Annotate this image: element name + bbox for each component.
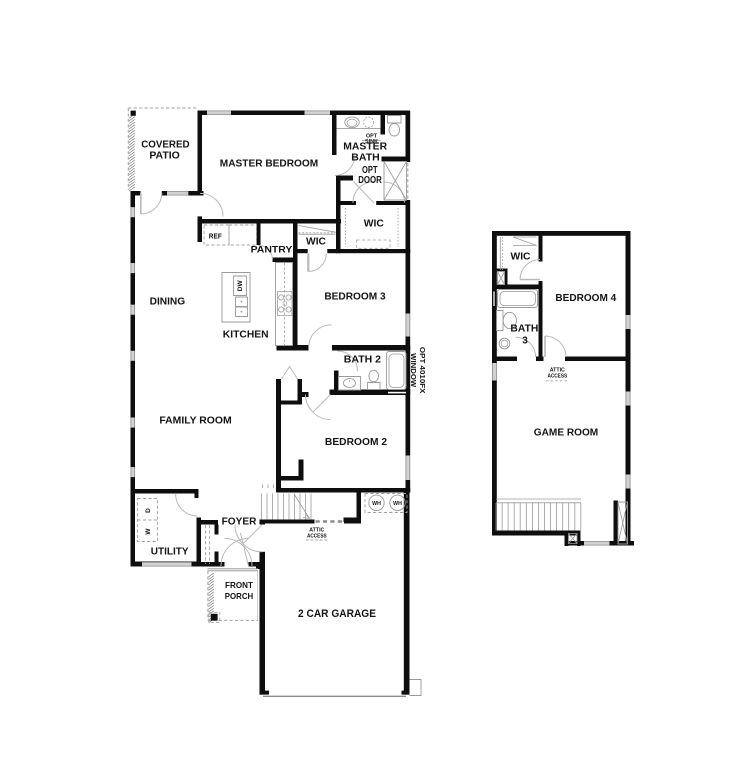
- svg-text:MASTER BEDROOM: MASTER BEDROOM: [220, 159, 318, 170]
- svg-text:PORCH: PORCH: [225, 591, 254, 601]
- svg-text:WH: WH: [393, 501, 402, 507]
- svg-text:3: 3: [522, 336, 528, 347]
- svg-text:DW: DW: [237, 280, 244, 292]
- svg-text:ACCESS: ACCESS: [307, 533, 327, 539]
- svg-text:2 CAR GARAGE: 2 CAR GARAGE: [298, 608, 376, 620]
- svg-text:OPT 4010FX: OPT 4010FX: [418, 347, 427, 394]
- svg-text:WIC: WIC: [511, 252, 531, 263]
- svg-text:PATIO: PATIO: [149, 151, 180, 162]
- svg-text:BATH: BATH: [351, 153, 379, 164]
- svg-text:FOYER: FOYER: [222, 516, 257, 528]
- svg-text:UTILITY: UTILITY: [151, 547, 189, 558]
- svg-text:WH: WH: [372, 501, 381, 507]
- svg-text:BEDROOM 3: BEDROOM 3: [324, 292, 386, 303]
- svg-text:FRONT: FRONT: [225, 580, 254, 590]
- svg-text:KITCHEN: KITCHEN: [223, 330, 269, 341]
- svg-text:COVERED: COVERED: [141, 139, 189, 150]
- svg-text:BATH: BATH: [510, 324, 538, 335]
- svg-text:ACCESS: ACCESS: [547, 373, 567, 379]
- svg-text:WIC: WIC: [306, 237, 326, 248]
- svg-text:GAME ROOM: GAME ROOM: [534, 427, 598, 438]
- svg-text:PANTRY: PANTRY: [251, 244, 293, 254]
- svg-text:FAMILY ROOM: FAMILY ROOM: [159, 416, 231, 427]
- svg-text:DINING: DINING: [150, 297, 186, 308]
- svg-text:DOOR: DOOR: [358, 175, 382, 186]
- svg-text:WINDOW: WINDOW: [409, 353, 418, 388]
- svg-text:WIC: WIC: [364, 218, 384, 229]
- svg-text:REF: REF: [209, 234, 223, 241]
- svg-text:BEDROOM 2: BEDROOM 2: [325, 437, 388, 448]
- svg-text:BEDROOM 4: BEDROOM 4: [555, 293, 616, 304]
- svg-text:W: W: [145, 528, 152, 535]
- svg-text:D: D: [145, 508, 152, 513]
- svg-text:BATH 2: BATH 2: [344, 355, 382, 366]
- svg-text:SINK: SINK: [365, 139, 378, 145]
